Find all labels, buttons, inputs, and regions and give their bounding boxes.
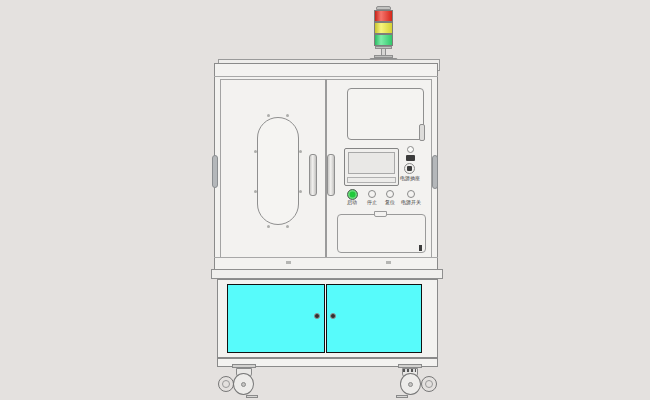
window-screw: [267, 225, 270, 228]
tower-bottom-cap: [375, 46, 392, 49]
window-screw: [254, 190, 257, 193]
side-grip-left: [212, 155, 218, 188]
machine-illustration: 电源插座 启动 停止 复位 电源开关: [0, 0, 650, 400]
door-knob-left: [314, 313, 320, 319]
tower-lamp-red: [374, 10, 393, 22]
leveling-pad-left: [246, 395, 258, 398]
tower-lamp-yellow: [374, 22, 393, 34]
window-screw: [286, 225, 289, 228]
hinge-mark-right: [386, 261, 391, 264]
leveling-pad-right: [396, 395, 408, 398]
access-panel-tab: [374, 211, 387, 217]
upper-window-handle: [419, 124, 425, 141]
caster-right-brake: [403, 369, 416, 372]
cabinet-door-right: [326, 284, 422, 353]
stop-button-label: 停止: [363, 200, 381, 206]
window-screw: [254, 150, 257, 153]
window-screw: [299, 150, 302, 153]
reset-button: [386, 190, 394, 198]
right-door-handle: [327, 154, 335, 196]
left-door-handle: [309, 154, 317, 196]
side-grip-right: [432, 155, 438, 189]
window-screw: [299, 190, 302, 193]
rocker-switch: [406, 155, 415, 161]
hmi-bottom-strip: [347, 177, 396, 183]
window-screw: [286, 114, 289, 117]
cabinet-door-left: [227, 284, 325, 353]
access-panel-latch: [419, 245, 422, 251]
tower-lamp-green: [374, 34, 393, 46]
caster-right-ring-inner: [425, 380, 433, 388]
cabinet-top-band-line: [214, 76, 438, 77]
hinge-mark-left: [286, 261, 291, 264]
power-button-label: 电源开关: [397, 200, 425, 206]
indicator-lamp: [407, 146, 414, 153]
door-knob-right: [330, 313, 336, 319]
power-socket-pins: [407, 166, 412, 171]
window-screw: [267, 114, 270, 117]
upper-access-window: [347, 88, 424, 140]
start-button-label: 启动: [341, 200, 363, 206]
caster-left-hub: [241, 382, 246, 387]
table-band: [211, 269, 443, 279]
caster-left-ring-inner: [222, 380, 230, 388]
access-panel: [337, 214, 426, 253]
hmi-screen: [348, 152, 395, 174]
viewing-window: [257, 117, 299, 225]
power-button: [407, 190, 415, 198]
stop-button: [368, 190, 376, 198]
caster-right-hub: [408, 382, 413, 387]
power-socket-label: 电源插座: [396, 176, 424, 182]
cabinet-bottom-band-line: [214, 257, 438, 258]
